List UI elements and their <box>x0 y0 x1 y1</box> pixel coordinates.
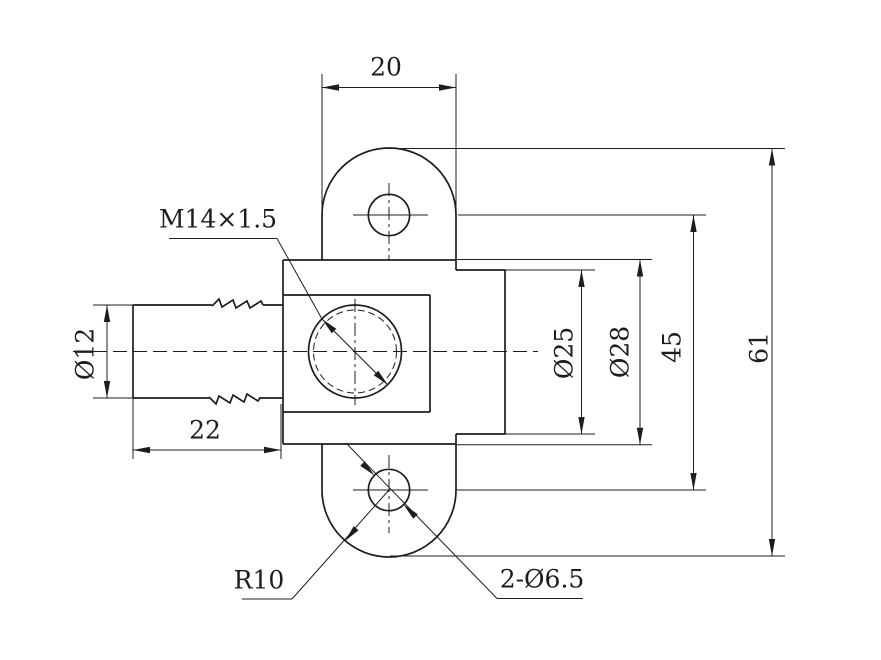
dim-label-barb-length: 22 <box>189 418 221 443</box>
dimension-arrowhead <box>769 149 775 166</box>
dim-label-lug-width: 20 <box>370 55 402 80</box>
dimension-arrowhead <box>104 381 110 398</box>
dim-label-hole-spacing: 45 <box>660 331 685 363</box>
thread-callout: M14×1.5 <box>159 207 277 232</box>
dimension-arrowhead <box>637 428 643 445</box>
dimension-arrowhead <box>345 526 359 541</box>
dimension-arrowhead <box>104 305 110 322</box>
dimension-arrowhead <box>133 447 150 453</box>
dimension-arrowhead <box>578 270 584 287</box>
lug-arc <box>322 148 456 215</box>
dimension-line <box>346 443 497 599</box>
drawing-canvas <box>0 0 881 660</box>
thread-zigzag <box>212 299 263 308</box>
thread-zigzag <box>209 394 260 404</box>
dimension-line <box>292 490 389 599</box>
dimension-arrowhead <box>637 260 643 277</box>
dim-label-flange-diameter: Ø28 <box>608 326 633 378</box>
dimension-arrowhead <box>322 84 339 90</box>
dim-label-overall-height: 61 <box>747 332 772 364</box>
dimension-arrowhead <box>578 417 584 434</box>
engineering-drawing: 20 M14×1.5 Ø12 22 Ø25 Ø28 45 61 R10 2-Ø6… <box>0 0 881 660</box>
dimension-arrowhead <box>264 447 281 453</box>
dim-label-barb-diameter: Ø12 <box>73 328 98 380</box>
lug-arc <box>322 490 456 557</box>
dimension-arrowhead <box>404 505 418 519</box>
dimension-arrowhead <box>769 539 775 556</box>
dim-label-bore-diameter: Ø25 <box>552 327 577 379</box>
dimension-arrowhead <box>360 461 374 475</box>
mount-holes-callout: 2-Ø6.5 <box>500 567 585 592</box>
radius-callout: R10 <box>234 568 285 593</box>
dimension-arrowhead <box>439 84 456 90</box>
dimension-arrowhead <box>690 215 696 232</box>
dimension-arrowhead <box>690 473 696 490</box>
